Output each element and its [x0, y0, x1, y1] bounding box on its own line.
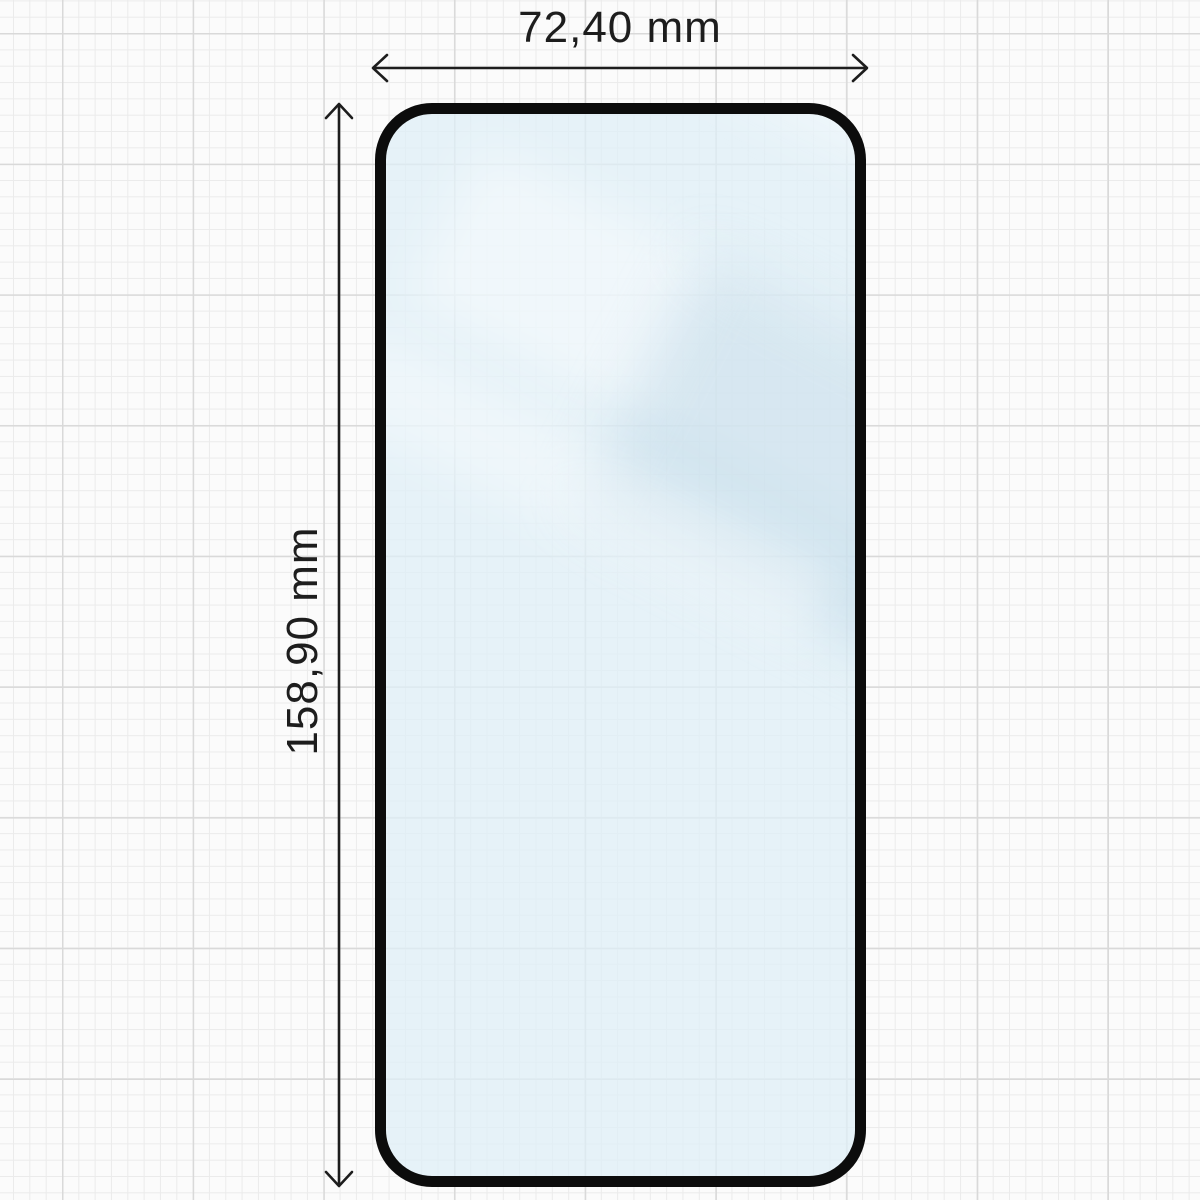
dimension-arrows	[0, 0, 1200, 1200]
height-dimension-label: 158,90 mm	[276, 441, 330, 841]
dimension-diagram: 72,40 mm 158,90 mm	[0, 0, 1200, 1200]
width-dimension-label: 72,40 mm	[420, 1, 820, 55]
width-dimension-arrow-icon	[373, 55, 867, 81]
